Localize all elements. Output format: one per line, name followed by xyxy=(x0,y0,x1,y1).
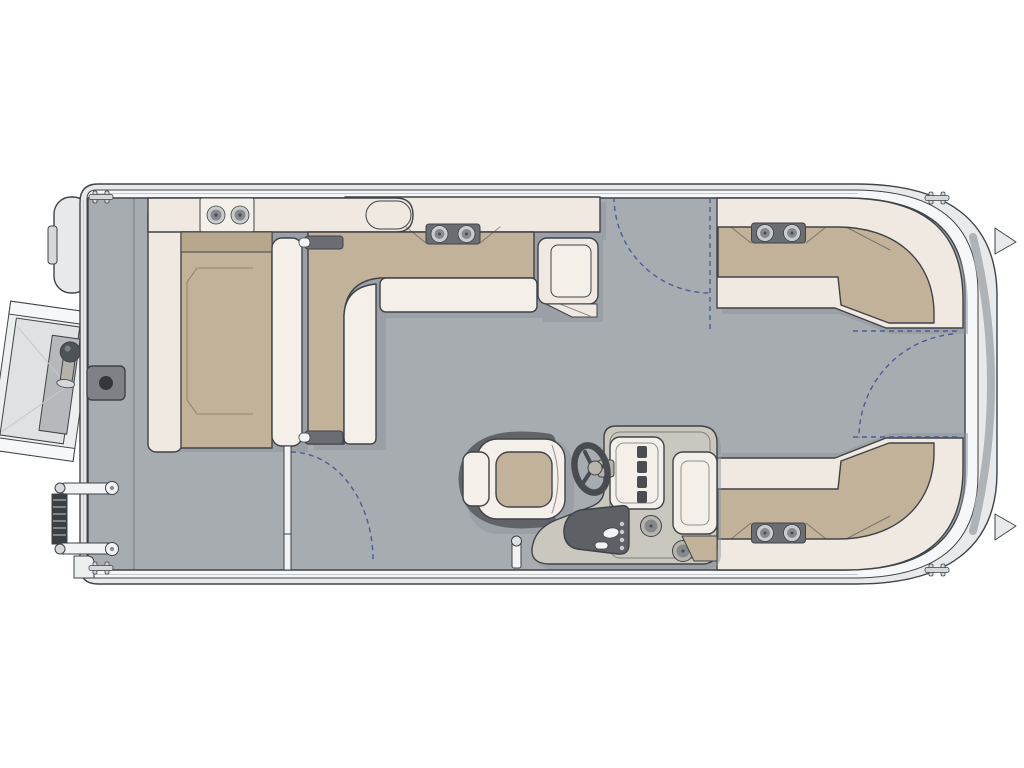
stern-lounge-front-edge xyxy=(272,238,302,446)
bow-port-cup-holders xyxy=(752,223,806,243)
bow-port-couch xyxy=(717,198,963,328)
jump-seat-backrest xyxy=(673,452,717,534)
gate-post xyxy=(284,446,291,570)
chair-headrest xyxy=(463,452,489,506)
port-bench-cup-holders xyxy=(426,224,480,244)
seat-hinge-bottom xyxy=(299,431,343,444)
bow-starboard-cup-holders xyxy=(752,523,806,543)
port-bench-leg-seat xyxy=(344,284,376,444)
port-bench-seat-front xyxy=(380,278,537,312)
pedestal-base xyxy=(87,366,125,400)
switch-panel xyxy=(564,506,629,554)
seat-hinge-top xyxy=(299,236,343,249)
pontoon-floorplan: Pontoon boat deck floor plan xyxy=(0,0,1024,768)
chair-insert xyxy=(496,452,552,507)
console-cup-holder-1 xyxy=(641,516,662,537)
stern-lounge-side-backrest xyxy=(148,204,182,452)
deck-post xyxy=(512,536,522,568)
throttle-switch xyxy=(595,542,608,549)
nosecone-fin-bottom xyxy=(995,514,1016,540)
stern-lounge-cup-holders xyxy=(200,198,254,232)
stern-lounge-cushion-top xyxy=(181,232,272,252)
bow-starboard-couch xyxy=(717,438,963,570)
nosecone-fin-top xyxy=(995,228,1016,254)
stern-lounge-cushion xyxy=(181,232,272,448)
